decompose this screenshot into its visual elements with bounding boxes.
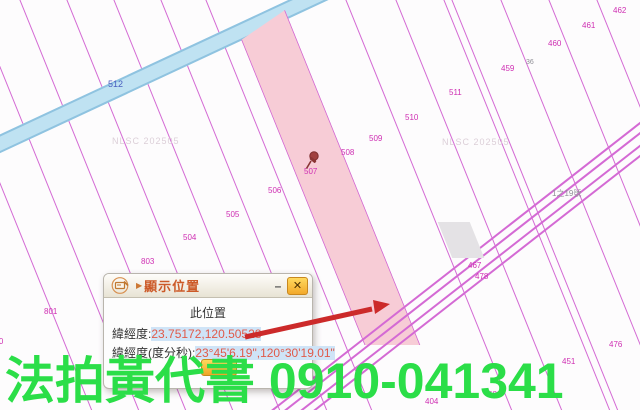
map-viewer: 512 504505506507508509510511459460461462… <box>0 0 640 410</box>
location-heading: 此位置 <box>108 304 308 321</box>
parcel-number-label: 467 <box>468 261 481 270</box>
parcel-number-label: 460 <box>548 39 561 48</box>
parcel-number-label: 505 <box>226 210 239 219</box>
parcel-number-label: 476 <box>609 340 622 349</box>
parcel-number-label: 506 <box>268 186 281 195</box>
caret-icon: ▶ <box>136 281 142 290</box>
latlng-label: 緯經度: <box>112 327 151 341</box>
parcel-number-label: 461 <box>582 21 595 30</box>
parcel-number-label: 478 <box>475 272 488 281</box>
parcel-number-label: 504 <box>183 233 196 242</box>
latlng-value[interactable]: 23.75172,120.50528 <box>151 327 261 341</box>
building-footprint <box>438 222 485 258</box>
parcel-number-label: 509 <box>369 134 382 143</box>
parcel-number-label: 510 <box>405 113 418 122</box>
minimize-button[interactable]: – <box>271 279 285 293</box>
dialog-titlebar[interactable]: ▶ 顯示位置 – ✕ <box>104 274 312 298</box>
close-button[interactable]: ✕ <box>287 277 308 295</box>
parcel-boundary-line <box>556 0 640 410</box>
parcel-number-label: 801 <box>44 307 57 316</box>
nlsc-watermark: NLSC 202505 <box>112 136 180 146</box>
dialog-title: 顯示位置 <box>144 276 200 295</box>
pushpin-marker-icon[interactable] <box>303 150 321 172</box>
parcel-number-label: 803 <box>141 257 154 266</box>
parcel-number-label: 511 <box>449 88 462 97</box>
nlsc-watermark: NLSC 202505 <box>442 137 510 147</box>
parcel-number-label: 462 <box>613 6 626 15</box>
ad-banner-text: 法拍黃代書 0910-041341 <box>5 341 564 410</box>
parcel-number-label: 459 <box>501 64 514 73</box>
spot-height-label: 36 <box>526 59 534 66</box>
latlng-row: 緯經度:23.75172,120.50528 <box>112 325 308 342</box>
river-parcel-label: 512 <box>108 79 123 89</box>
location-card-icon <box>111 277 133 294</box>
parcel-number-label: 451 <box>562 357 575 366</box>
parcel-number-label: 508 <box>341 148 354 157</box>
address-label: 1之19號 <box>552 188 581 199</box>
parcel-number-label: 800 <box>0 337 3 346</box>
